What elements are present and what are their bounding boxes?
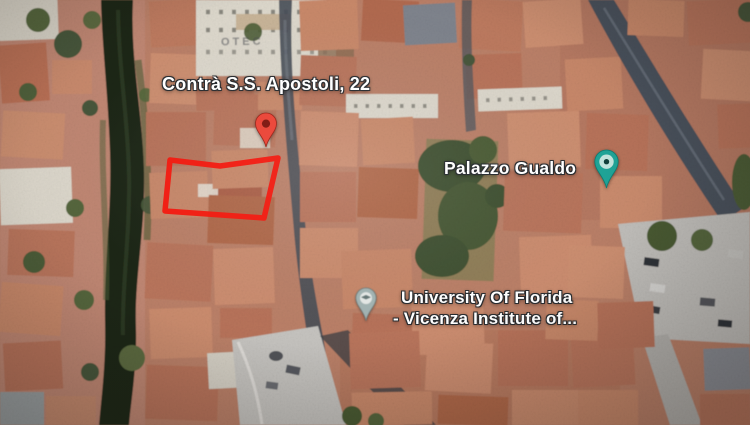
satellite-map-viewport[interactable]: OTEC Contrà S.S. Apostoli, 22 Palazzo Gu… <box>0 0 750 425</box>
university-pin[interactable] <box>354 287 378 322</box>
palazzo-gualdo-pin[interactable] <box>593 149 620 190</box>
university-label-line1: University Of Florida <box>401 287 577 308</box>
university-label-line2: - Vicenza Institute of... <box>393 308 577 329</box>
satellite-imagery <box>0 0 750 425</box>
red-map-pin[interactable] <box>254 112 278 149</box>
rooftop-photo-text: OTEC <box>221 36 264 49</box>
address-label[interactable]: Contrà S.S. Apostoli, 22 <box>162 74 370 95</box>
poi-label-university[interactable]: University Of Florida - Vicenza Institut… <box>393 287 577 329</box>
poi-label-palazzo-gualdo[interactable]: Palazzo Gualdo <box>444 158 576 179</box>
